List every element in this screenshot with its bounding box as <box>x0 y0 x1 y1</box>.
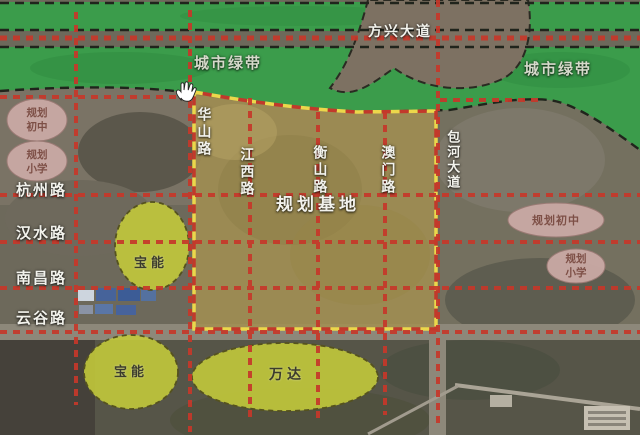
green-belt-left-label: 城市绿带 <box>194 56 262 73</box>
zone-wanda-label: 万达 <box>269 367 305 382</box>
road-yungu-label: 云谷路 <box>16 311 67 328</box>
school-left-junior-label: 规划初中 <box>24 107 50 134</box>
road-huashan-label: 华山路 <box>196 107 211 158</box>
road-hangzhou-label: 杭州路 <box>16 183 67 200</box>
zone-baoneng-lower-label: 宝能 <box>114 365 148 379</box>
green-belt-right-label: 城市绿带 <box>524 62 592 79</box>
road-baohe-avenue-label: 包河大道 <box>445 130 459 190</box>
school-left-primary-label: 规划小学 <box>24 149 50 176</box>
planning-base-label: 规划基地 <box>276 196 360 215</box>
planning-map[interactable]: 城市绿带 城市绿带 方兴大道 规划基地 杭州路 汉水路 南昌路 云谷路 华山路 … <box>0 0 640 435</box>
road-nanchang-label: 南昌路 <box>16 271 67 288</box>
school-right-junior-label: 规划初中 <box>532 214 580 228</box>
zone-baoneng-upper-label: 宝能 <box>134 256 168 270</box>
fangxing-avenue-label: 方兴大道 <box>368 24 432 39</box>
school-right-primary-label: 规划小学 <box>563 253 589 280</box>
road-jiangxi-label: 江西路 <box>239 147 254 198</box>
road-aomen-label: 澳门路 <box>380 145 395 196</box>
zone-baoneng-upper <box>115 202 189 290</box>
road-hanshui-label: 汉水路 <box>16 226 67 243</box>
road-hengshan-label: 衡山路 <box>312 145 327 196</box>
